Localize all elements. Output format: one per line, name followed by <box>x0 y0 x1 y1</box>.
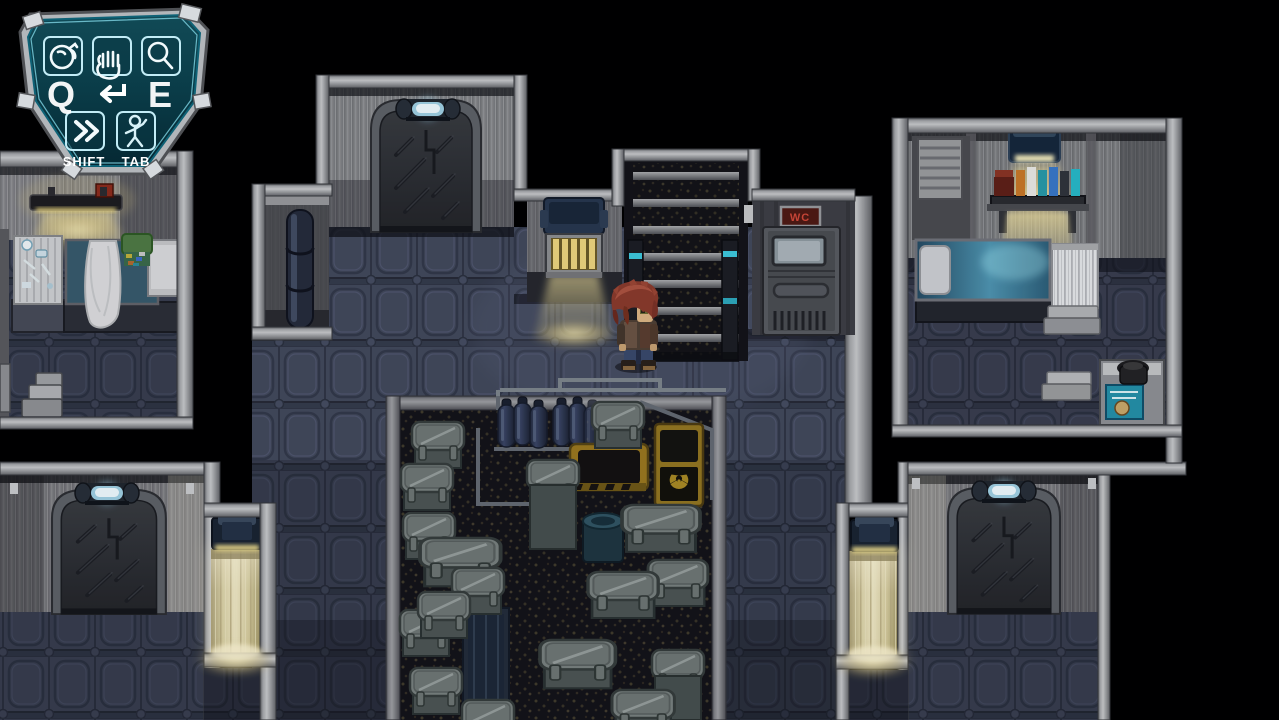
svg-text:E: E <box>148 74 172 115</box>
svg-text:TAB: TAB <box>122 154 151 169</box>
svg-text:SHIFT: SHIFT <box>63 154 106 169</box>
svg-text:Q: Q <box>47 74 75 115</box>
